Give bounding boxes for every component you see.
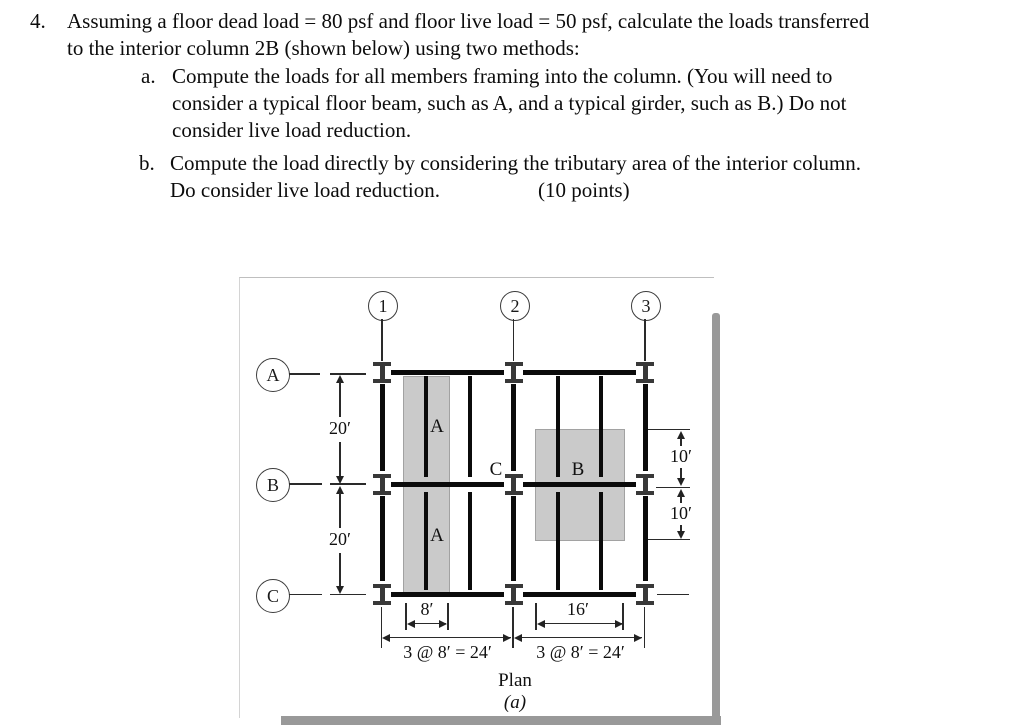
grid-leader-3 bbox=[644, 319, 645, 361]
grid-leader-a bbox=[289, 373, 320, 374]
dim-upper-right: 10′ bbox=[662, 446, 700, 467]
edge-member-line3-lower bbox=[643, 496, 648, 581]
dim-arrow-left bbox=[407, 620, 415, 628]
edge-member-line2-upper bbox=[511, 384, 516, 471]
dim-arrow-right bbox=[634, 634, 642, 642]
problem-intro-line1: Assuming a floor dead load = 80 psf and … bbox=[67, 9, 869, 34]
caption-figure: (a) bbox=[475, 692, 555, 714]
grid-leader-1 bbox=[381, 319, 382, 361]
dim-arrow-down bbox=[336, 476, 344, 484]
column-symbol-2a bbox=[505, 362, 523, 383]
grid-bubble-3: 3 bbox=[631, 291, 661, 321]
column-symbol-3c bbox=[636, 584, 654, 605]
row-c-stub-line bbox=[657, 594, 689, 595]
girder-row-a-left bbox=[391, 370, 504, 375]
girder-row-b-right bbox=[523, 482, 636, 487]
grid-bubble-3-label: 3 bbox=[642, 296, 651, 317]
dim-arrow-right bbox=[503, 634, 511, 642]
dim-ext-line bbox=[447, 603, 448, 630]
column-symbol-1a bbox=[373, 362, 391, 383]
panel-shadow-bottom bbox=[281, 716, 721, 725]
dim-tick bbox=[648, 539, 690, 540]
dim-line bbox=[339, 382, 340, 417]
grid-bubble-a-label: A bbox=[267, 365, 280, 386]
dim-line bbox=[517, 637, 642, 638]
dim-ext-line bbox=[381, 607, 382, 648]
dim-girder-trib: 16′ bbox=[558, 599, 598, 620]
grid-bubble-1-label: 1 bbox=[379, 296, 388, 317]
dim-line bbox=[680, 496, 681, 503]
column-symbol-2c bbox=[505, 584, 523, 605]
dim-line bbox=[339, 493, 340, 528]
grid-bubble-b: B bbox=[256, 468, 290, 502]
grid-bubble-b-label: B bbox=[267, 475, 279, 496]
girder-row-c-right bbox=[523, 592, 636, 597]
grid-bubble-2-label: 2 bbox=[511, 296, 520, 317]
dim-tick bbox=[330, 594, 366, 595]
item-b-marker: b. bbox=[139, 151, 155, 176]
dim-bc-spacing: 20′ bbox=[318, 529, 362, 550]
floor-beam bbox=[468, 492, 472, 590]
item-a-line3: consider live load reduction. bbox=[172, 118, 411, 143]
dim-right-bay: 3 @ 8′ = 24′ bbox=[518, 642, 643, 663]
dim-arrow-left bbox=[514, 634, 522, 642]
column-symbol-3b bbox=[636, 474, 654, 495]
dim-arrow-left bbox=[382, 634, 390, 642]
grid-leader-b bbox=[289, 483, 322, 484]
floor-beam bbox=[599, 376, 603, 477]
dim-line bbox=[339, 553, 340, 587]
floor-beam bbox=[599, 492, 603, 590]
column-symbol-1b bbox=[373, 474, 391, 495]
caption-title: Plan bbox=[475, 670, 555, 692]
dim-arrow-left bbox=[537, 620, 545, 628]
grid-leader-2 bbox=[513, 319, 514, 361]
page: 4. Assuming a floor dead load = 80 psf a… bbox=[0, 0, 1012, 725]
floor-beam bbox=[556, 376, 560, 477]
grid-bubble-2: 2 bbox=[500, 291, 530, 321]
edge-member-line1-upper bbox=[380, 384, 385, 471]
dim-arrow-down bbox=[677, 478, 685, 486]
dim-line bbox=[385, 637, 511, 638]
dim-ab-spacing: 20′ bbox=[318, 418, 362, 439]
girder-label: B bbox=[566, 459, 590, 481]
floor-beam bbox=[468, 376, 472, 477]
column-ref-label: C bbox=[486, 459, 506, 481]
grid-bubble-a: A bbox=[256, 358, 290, 392]
problem-number: 4. bbox=[30, 9, 46, 34]
dim-ext-line bbox=[644, 607, 645, 648]
dim-tick bbox=[656, 487, 690, 488]
girder-row-b-left bbox=[391, 482, 504, 487]
dim-line bbox=[539, 623, 623, 624]
grid-bubble-c-label: C bbox=[267, 586, 279, 607]
item-b-line1: Compute the load directly by considering… bbox=[170, 151, 861, 176]
column-symbol-3a bbox=[636, 362, 654, 383]
grid-bubble-c: C bbox=[256, 579, 290, 613]
girder-row-a-right bbox=[523, 370, 636, 375]
column-symbol-2b bbox=[505, 474, 523, 495]
dim-ext-line bbox=[512, 607, 513, 648]
dim-lower-right: 10′ bbox=[662, 503, 700, 524]
edge-member-line2-lower bbox=[511, 496, 516, 581]
dim-ext-line bbox=[622, 603, 623, 630]
dim-line bbox=[339, 442, 340, 476]
item-a-line2: consider a typical floor beam, such as A… bbox=[172, 91, 846, 116]
dim-arrow-right bbox=[615, 620, 623, 628]
dim-left-bay: 3 @ 8′ = 24′ bbox=[385, 642, 510, 663]
column-symbol-1c bbox=[373, 584, 391, 605]
item-a-line1: Compute the loads for all members framin… bbox=[172, 64, 832, 89]
edge-member-line1-lower bbox=[380, 496, 385, 581]
panel-shadow-right bbox=[712, 313, 720, 725]
dim-beam-trib: 8′ bbox=[411, 599, 443, 620]
dim-arrow-right bbox=[439, 620, 447, 628]
dim-arrow-down bbox=[336, 586, 344, 594]
floor-beam-label-lower: A bbox=[425, 525, 449, 547]
floor-beam bbox=[556, 492, 560, 590]
problem-intro-line2: to the interior column 2B (shown below) … bbox=[67, 36, 580, 61]
points-label: (10 points) bbox=[538, 178, 630, 203]
edge-member-line3-upper bbox=[643, 384, 648, 471]
grid-leader-c bbox=[289, 594, 322, 595]
item-b-line2: Do consider live load reduction. bbox=[170, 178, 440, 203]
dim-arrow-down bbox=[677, 531, 685, 539]
girder-row-c-left bbox=[391, 592, 504, 597]
item-a-marker: a. bbox=[141, 64, 156, 89]
floor-beam-label-upper: A bbox=[425, 416, 449, 438]
grid-bubble-1: 1 bbox=[368, 291, 398, 321]
